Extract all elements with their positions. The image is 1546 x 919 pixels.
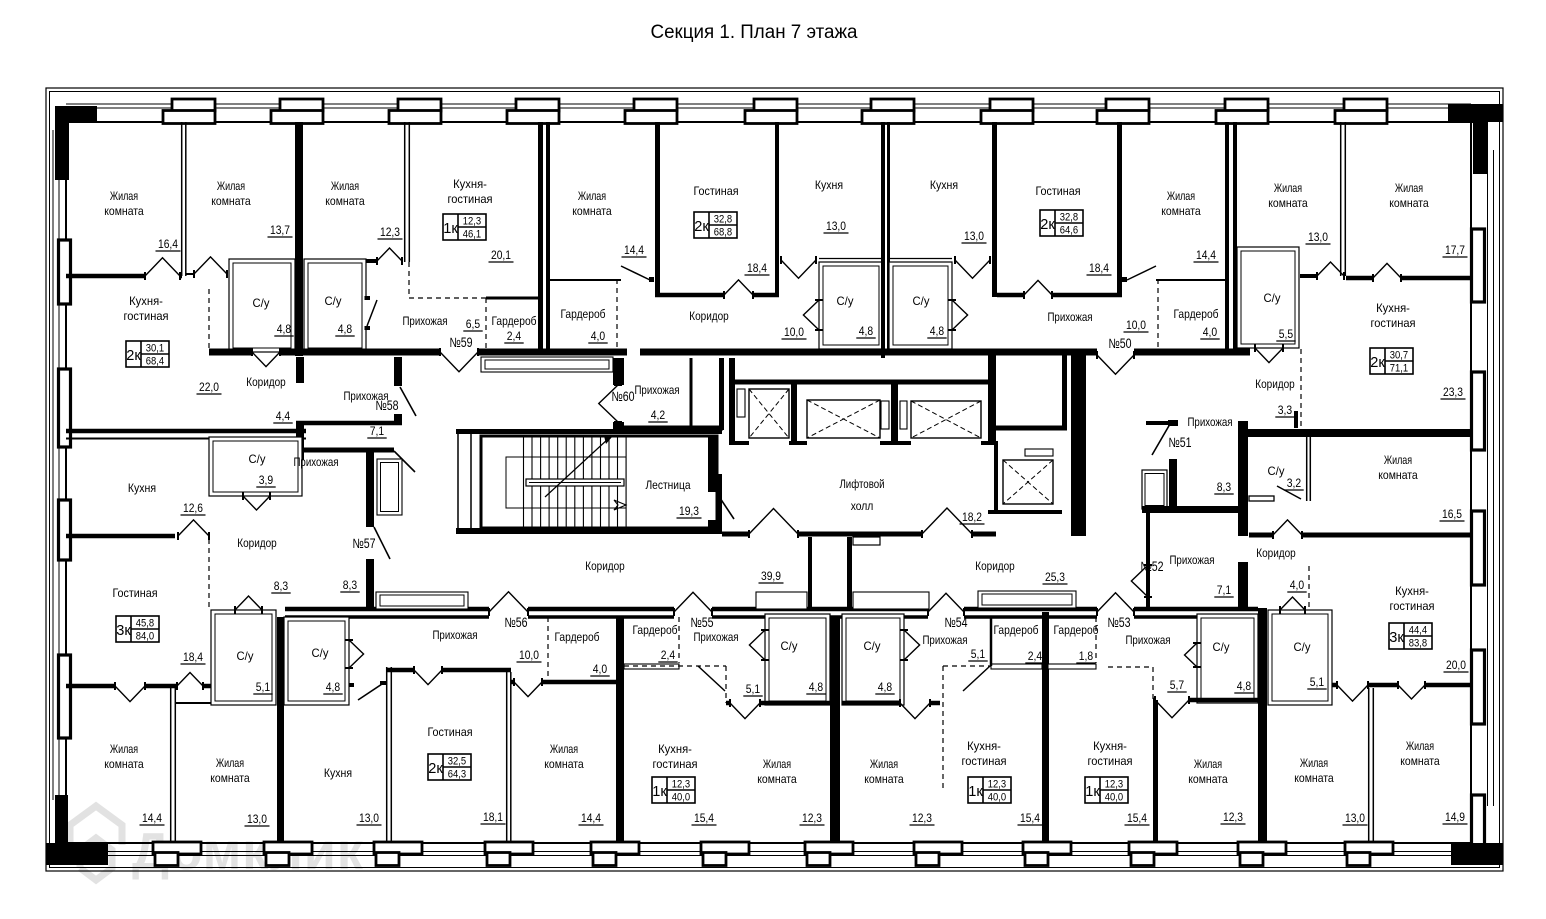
svg-text:12,3: 12,3 [912,811,932,825]
svg-text:Гостиная: Гостиная [112,586,157,600]
svg-text:Прихожая: Прихожая [1047,310,1092,324]
svg-text:комната: комната [1400,754,1440,768]
svg-text:8,3: 8,3 [274,579,289,593]
svg-text:12,3: 12,3 [672,779,690,791]
svg-text:4,8: 4,8 [859,324,874,338]
svg-text:Жилая: Жилая [1274,181,1302,195]
svg-text:№58: №58 [375,398,398,413]
svg-text:комната: комната [104,204,144,218]
svg-text:Прихожая: Прихожая [922,633,967,647]
svg-text:Жилая: Жилая [216,756,244,770]
svg-text:8,3: 8,3 [343,578,358,592]
svg-text:1к: 1к [1085,784,1100,800]
svg-text:Гардероб: Гардероб [1173,307,1218,321]
svg-text:№50: №50 [1108,336,1131,351]
svg-text:7,1: 7,1 [370,424,385,438]
svg-text:4,0: 4,0 [593,662,608,676]
svg-text:Прихожая: Прихожая [1169,553,1214,567]
svg-text:1к: 1к [652,784,667,800]
svg-text:1к: 1к [443,221,458,237]
svg-text:Прихожая: Прихожая [634,383,679,397]
svg-text:13,0: 13,0 [826,219,846,233]
svg-text:Жилая: Жилая [550,742,578,756]
svg-text:32,8: 32,8 [1060,212,1078,224]
svg-text:Кухня: Кухня [815,178,843,192]
svg-text:Коридор: Коридор [975,559,1015,573]
svg-text:Жилая: Жилая [870,757,898,771]
svg-text:5,1: 5,1 [1310,675,1325,689]
svg-text:Гостиная: Гостиная [693,184,738,198]
svg-text:С/у: С/у [249,452,266,466]
svg-text:3,3: 3,3 [1278,403,1293,417]
svg-text:С/у: С/у [253,296,270,310]
svg-text:15,4: 15,4 [1127,811,1147,825]
svg-text:комната: комната [572,204,612,218]
svg-text:12,6: 12,6 [183,501,203,515]
svg-text:5,1: 5,1 [971,647,986,661]
svg-text:71,1: 71,1 [1390,363,1408,375]
svg-text:64,6: 64,6 [1060,225,1078,237]
svg-text:5,7: 5,7 [1170,678,1185,692]
svg-text:комната: комната [544,757,584,771]
svg-text:Кухня: Кухня [128,481,156,495]
svg-text:13,0: 13,0 [964,229,984,243]
svg-text:45,8: 45,8 [136,618,154,630]
svg-text:Кухня-: Кухня- [1395,584,1429,598]
svg-text:13,0: 13,0 [359,811,379,825]
svg-text:25,3: 25,3 [1045,570,1065,584]
svg-text:Гардероб: Гардероб [554,630,599,644]
svg-text:2к: 2к [1370,355,1385,371]
svg-text:5,1: 5,1 [256,680,271,694]
svg-text:Коридор: Коридор [1256,546,1296,560]
svg-text:С/у: С/у [1264,291,1281,305]
svg-text:12,3: 12,3 [463,216,481,228]
svg-text:4,8: 4,8 [338,322,353,336]
svg-text:Гардероб: Гардероб [1053,623,1098,637]
svg-text:Кухня-: Кухня- [1376,301,1410,315]
svg-text:2к: 2к [1040,217,1055,233]
svg-text:7,1: 7,1 [1217,583,1232,597]
svg-text:16,4: 16,4 [158,237,178,251]
svg-text:С/у: С/у [781,639,798,653]
svg-text:2к: 2к [428,761,443,777]
svg-text:комната: комната [757,772,797,786]
svg-text:Прихожая: Прихожая [1187,415,1232,429]
svg-text:12,3: 12,3 [380,225,400,239]
svg-text:гостиная: гостиная [961,754,1006,768]
svg-text:комната: комната [211,194,251,208]
svg-text:Прихожая: Прихожая [1125,633,1170,647]
svg-text:1к: 1к [968,784,983,800]
svg-text:комната: комната [1161,204,1201,218]
svg-text:40,0: 40,0 [672,792,690,804]
svg-text:2к: 2к [694,219,709,235]
svg-text:32,8: 32,8 [714,214,732,226]
svg-text:1,8: 1,8 [1079,649,1094,663]
svg-text:Коридор: Коридор [1255,377,1295,391]
svg-text:17,7: 17,7 [1445,243,1465,257]
svg-text:14,9: 14,9 [1445,810,1465,824]
svg-text:С/у: С/у [312,646,329,660]
svg-text:Коридор: Коридор [237,536,277,550]
svg-text:комната: комната [1268,196,1308,210]
svg-text:Гардероб: Гардероб [993,623,1038,637]
svg-text:18,2: 18,2 [962,510,982,524]
svg-text:Жилая: Жилая [1300,756,1328,770]
svg-text:Прихожая: Прихожая [293,455,338,469]
svg-text:14,4: 14,4 [624,243,644,257]
svg-text:комната: комната [325,194,365,208]
svg-text:16,5: 16,5 [1442,507,1462,521]
svg-text:13,7: 13,7 [270,223,290,237]
svg-text:Кухня: Кухня [324,766,352,780]
svg-text:5,5: 5,5 [1279,327,1294,341]
svg-text:20,1: 20,1 [491,248,511,262]
svg-text:С/у: С/у [1213,640,1230,654]
svg-text:4,8: 4,8 [930,324,945,338]
svg-text:2к: 2к [126,348,141,364]
svg-text:40,0: 40,0 [988,792,1006,804]
svg-text:Кухня-: Кухня- [1093,739,1127,753]
svg-text:6,5: 6,5 [466,317,481,331]
svg-text:4,2: 4,2 [651,408,666,422]
svg-text:10,0: 10,0 [519,648,539,662]
svg-text:комната: комната [1378,468,1418,482]
svg-text:8,3: 8,3 [1217,480,1232,494]
svg-text:40,0: 40,0 [1105,792,1123,804]
svg-text:Секция 1. План 7 этажа: Секция 1. План 7 этажа [651,22,858,43]
svg-text:10,0: 10,0 [1126,318,1146,332]
svg-text:83,8: 83,8 [1409,638,1427,650]
svg-text:Кухня-: Кухня- [453,177,487,191]
svg-text:4,0: 4,0 [1290,578,1305,592]
svg-text:Гардероб: Гардероб [560,307,605,321]
svg-text:гостиная: гостиная [1370,316,1415,330]
svg-text:Жилая: Жилая [1167,189,1195,203]
svg-text:комната: комната [210,771,250,785]
svg-text:№57: №57 [352,536,375,551]
svg-text:18,4: 18,4 [1089,261,1109,275]
svg-text:19,3: 19,3 [679,504,699,518]
svg-text:4,0: 4,0 [1203,325,1218,339]
svg-text:Жилая: Жилая [1194,757,1222,771]
svg-text:№55: №55 [690,615,713,630]
svg-text:30,7: 30,7 [1390,350,1408,362]
svg-text:84,0: 84,0 [136,631,154,643]
svg-text:5,1: 5,1 [746,682,761,696]
svg-text:2,4: 2,4 [661,648,676,662]
svg-text:С/у: С/у [325,294,342,308]
svg-text:3,9: 3,9 [259,473,274,487]
svg-text:№52: №52 [1140,559,1163,574]
svg-text:Кухня-: Кухня- [967,739,1001,753]
svg-text:Жилая: Жилая [1395,181,1423,195]
svg-text:Жилая: Жилая [110,742,138,756]
svg-text:С/у: С/у [1268,464,1285,478]
svg-text:68,8: 68,8 [714,227,732,239]
svg-text:68,4: 68,4 [146,356,164,368]
svg-text:14,4: 14,4 [1196,248,1216,262]
svg-text:С/у: С/у [837,294,854,308]
svg-text:№60: №60 [611,389,634,404]
svg-text:12,3: 12,3 [1223,810,1243,824]
svg-text:4,8: 4,8 [326,680,341,694]
svg-text:Гардероб: Гардероб [491,314,536,328]
svg-text:Гостиная: Гостиная [427,725,472,739]
svg-text:Коридор: Коридор [585,559,625,573]
svg-text:Коридор: Коридор [246,375,286,389]
svg-text:4,4: 4,4 [276,409,291,423]
svg-text:3,2: 3,2 [1287,476,1302,490]
svg-text:18,1: 18,1 [483,810,503,824]
svg-text:Кухня-: Кухня- [129,294,163,308]
svg-text:Коридор: Коридор [689,309,729,323]
svg-text:комната: комната [1188,772,1228,786]
svg-text:Кухня-: Кухня- [658,742,692,756]
svg-text:32,5: 32,5 [448,756,466,768]
svg-text:44,4: 44,4 [1409,625,1427,637]
svg-text:гостиная: гостиная [652,757,697,771]
svg-text:46,1: 46,1 [463,229,481,241]
svg-text:гостиная: гостиная [447,192,492,206]
svg-text:Жилая: Жилая [217,179,245,193]
svg-text:С/у: С/у [913,294,930,308]
svg-text:15,4: 15,4 [694,811,714,825]
svg-text:С/у: С/у [864,639,881,653]
svg-text:14,4: 14,4 [142,811,162,825]
svg-text:комната: комната [1294,771,1334,785]
svg-text:Гардероб: Гардероб [632,623,677,637]
svg-text:гостиная: гостиная [123,309,168,323]
svg-text:№53: №53 [1107,615,1130,630]
svg-text:4,8: 4,8 [1237,679,1252,693]
svg-text:Лестница: Лестница [645,478,690,492]
svg-text:№56: №56 [504,615,527,630]
svg-text:2,4: 2,4 [1028,649,1043,663]
svg-text:холл: холл [851,499,874,513]
svg-text:Жилая: Жилая [1406,739,1434,753]
svg-text:Жилая: Жилая [578,189,606,203]
svg-text:12,3: 12,3 [802,811,822,825]
svg-text:15,4: 15,4 [1020,811,1040,825]
svg-text:Прихожая: Прихожая [402,314,447,328]
svg-text:4,8: 4,8 [277,322,292,336]
svg-text:Прихожая: Прихожая [432,628,477,642]
svg-text:10,0: 10,0 [784,325,804,339]
svg-text:13,0: 13,0 [247,812,267,826]
svg-text:№51: №51 [1168,435,1191,450]
svg-text:Жилая: Жилая [110,189,138,203]
svg-text:3к: 3к [1389,630,1404,646]
svg-text:2,4: 2,4 [507,329,522,343]
svg-text:Лифтовой: Лифтовой [839,477,884,491]
svg-text:С/у: С/у [237,649,254,663]
svg-text:18,4: 18,4 [183,650,203,664]
svg-text:22,0: 22,0 [199,380,219,394]
svg-text:30,1: 30,1 [146,343,164,355]
svg-text:Жилая: Жилая [1384,453,1412,467]
svg-text:Жилая: Жилая [331,179,359,193]
svg-text:№54: №54 [944,615,968,630]
svg-text:Кухня: Кухня [930,178,958,192]
svg-text:комната: комната [1389,196,1429,210]
svg-text:Прихожая: Прихожая [693,630,738,644]
svg-text:64,3: 64,3 [448,769,466,781]
svg-text:комната: комната [104,757,144,771]
svg-text:13,0: 13,0 [1345,811,1365,825]
svg-text:гостиная: гостиная [1087,754,1132,768]
svg-text:18,4: 18,4 [747,261,767,275]
svg-text:39,9: 39,9 [761,569,781,583]
svg-text:14,4: 14,4 [581,811,601,825]
svg-text:23,3: 23,3 [1443,385,1463,399]
svg-text:4,0: 4,0 [591,329,606,343]
svg-text:Гостиная: Гостиная [1035,184,1080,198]
svg-text:4,8: 4,8 [809,680,824,694]
svg-text:12,3: 12,3 [988,779,1006,791]
svg-text:Жилая: Жилая [763,757,791,771]
svg-text:4,8: 4,8 [878,680,893,694]
svg-text:комната: комната [864,772,904,786]
svg-text:С/у: С/у [1294,640,1311,654]
svg-text:№59: №59 [449,335,472,350]
svg-text:13,0: 13,0 [1308,230,1328,244]
svg-text:12,3: 12,3 [1105,779,1123,791]
svg-text:3к: 3к [116,623,131,639]
svg-text:20,0: 20,0 [1446,658,1466,672]
svg-text:гостиная: гостиная [1389,599,1434,613]
